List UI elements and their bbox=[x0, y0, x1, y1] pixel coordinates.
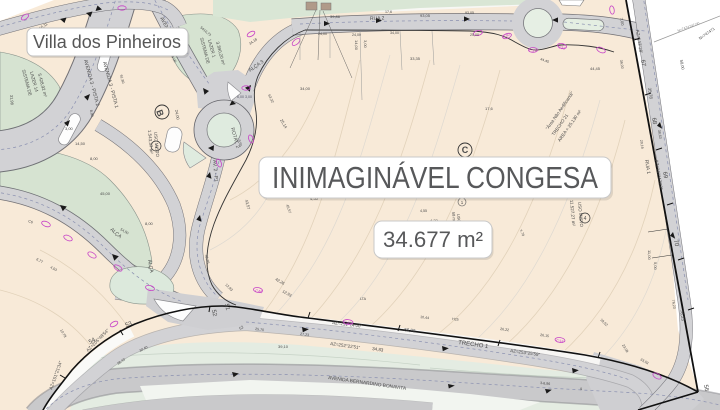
svg-text:45,00: 45,00 bbox=[100, 191, 111, 196]
svg-text:25,00: 25,00 bbox=[470, 33, 479, 37]
svg-text:4,55: 4,55 bbox=[420, 209, 427, 213]
svg-text:93,05: 93,05 bbox=[420, 13, 431, 18]
svg-text:H25: H25 bbox=[452, 317, 459, 322]
svg-text:24,00: 24,00 bbox=[352, 33, 361, 37]
svg-text:17,6: 17,6 bbox=[385, 10, 392, 14]
svg-text:39,86: 39,86 bbox=[330, 14, 341, 19]
svg-text:C: C bbox=[462, 145, 469, 155]
svg-text:34.677 m²: 34.677 m² bbox=[383, 227, 483, 252]
svg-text:34,00: 34,00 bbox=[300, 86, 311, 91]
svg-text:3,00: 3,00 bbox=[363, 40, 368, 49]
svg-text:8,00: 8,00 bbox=[90, 156, 99, 161]
svg-text:6,00 3,00: 6,00 3,00 bbox=[237, 95, 252, 99]
svg-text:14,00: 14,00 bbox=[354, 40, 359, 51]
svg-text:C31: C31 bbox=[529, 48, 537, 53]
svg-text:24,00: 24,00 bbox=[318, 32, 327, 36]
svg-text:Villa dos Pinheiros: Villa dos Pinheiros bbox=[33, 31, 181, 52]
svg-text:5,00: 5,00 bbox=[653, 262, 658, 271]
svg-text:C45: C45 bbox=[344, 320, 353, 326]
svg-text:LTA: LTA bbox=[360, 297, 367, 301]
svg-text:31,98: 31,98 bbox=[9, 95, 15, 106]
svg-text:11,00: 11,00 bbox=[647, 250, 652, 260]
svg-text:17,6: 17,6 bbox=[485, 106, 494, 111]
svg-text:44,45: 44,45 bbox=[590, 66, 601, 71]
svg-text:34,00: 34,00 bbox=[390, 31, 399, 35]
svg-text:14,50: 14,50 bbox=[75, 141, 86, 146]
svg-text:33,35: 33,35 bbox=[410, 56, 421, 61]
svg-text:3,00: 3,00 bbox=[65, 126, 74, 131]
svg-text:93,05: 93,05 bbox=[465, 11, 474, 15]
svg-text:INIMAGINÁVEL CONGESA: INIMAGINÁVEL CONGESA bbox=[272, 160, 598, 195]
svg-text:9: 9 bbox=[580, 387, 582, 391]
svg-text:39,10: 39,10 bbox=[278, 344, 289, 349]
svg-text:RUA 2: RUA 2 bbox=[370, 15, 385, 22]
svg-text:8,00: 8,00 bbox=[145, 221, 154, 226]
